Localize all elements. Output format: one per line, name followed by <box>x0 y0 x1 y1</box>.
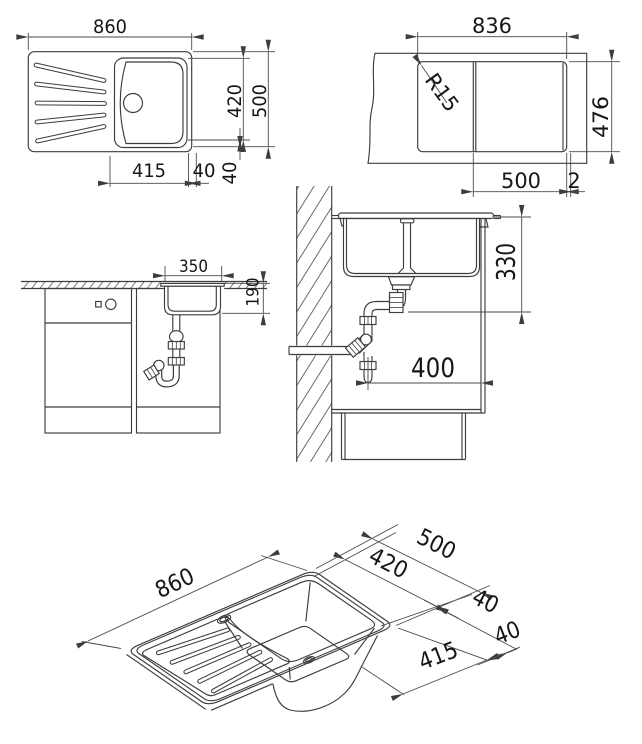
dim-cutout-edge-gap: 2 <box>567 169 580 193</box>
dim-plan-rim-right: 40 <box>193 160 216 182</box>
dim-iso-overall-width: 860 <box>151 563 198 603</box>
dim-iso-overall-depth: 500 <box>412 524 459 565</box>
trap-ball-joint <box>170 331 184 343</box>
wall-hatch <box>297 186 332 462</box>
sink-rim-section <box>339 213 494 219</box>
drawing-sheet: 860 420 500 415 40 40 <box>0 0 642 744</box>
dim-iso-rim-depth-gap: 40 <box>468 584 503 619</box>
technical-drawing-canvas: 860 420 500 415 40 40 <box>0 0 642 744</box>
dim-plan-bowl-width: 415 <box>132 160 166 182</box>
dim-iso-bowl-width: 415 <box>415 637 462 676</box>
sink-rim <box>161 283 224 286</box>
front-bowl <box>161 283 224 314</box>
cutout-view: 836 R15 476 500 2 <box>368 14 620 197</box>
dim-side-siphon-clearance: 400 <box>411 353 455 384</box>
dishwasher-dial <box>106 299 116 309</box>
worktop-hatch-left <box>21 282 161 289</box>
drain-fitting <box>389 277 415 285</box>
side-siphon <box>346 277 415 383</box>
dim-cutout-width: 836 <box>472 14 512 38</box>
dim-cutout-bowl-zone: 500 <box>501 169 541 193</box>
dim-iso-bowl-depth: 420 <box>364 543 411 584</box>
dim-plan-bowl-depth: 420 <box>224 84 246 118</box>
cabinet-left <box>45 289 132 434</box>
bowl-outer <box>115 58 188 148</box>
plan-view: 860 420 500 415 40 40 <box>28 16 275 187</box>
dim-iso-rim-width-gap: 40 <box>491 617 525 651</box>
dim-front-bowl-depth: 190 <box>244 278 264 307</box>
dishwasher-button <box>96 302 102 308</box>
dim-front-bowl-width: 350 <box>179 257 208 277</box>
dim-plan-overall-depth: 500 <box>249 84 271 118</box>
dim-plan-rim-bottom: 40 <box>219 162 241 185</box>
dim-side-install-depth: 330 <box>492 243 522 281</box>
side-section-view: 330 400 <box>289 186 531 462</box>
dim-cutout-depth: 476 <box>589 96 613 138</box>
iso-view: 860 500 420 40 415 40 <box>82 524 524 711</box>
front-view: 350 190 <box>21 257 270 433</box>
front-siphon <box>144 315 185 384</box>
dim-plan-overall-width: 860 <box>93 16 127 38</box>
bowl-section <box>344 219 480 277</box>
